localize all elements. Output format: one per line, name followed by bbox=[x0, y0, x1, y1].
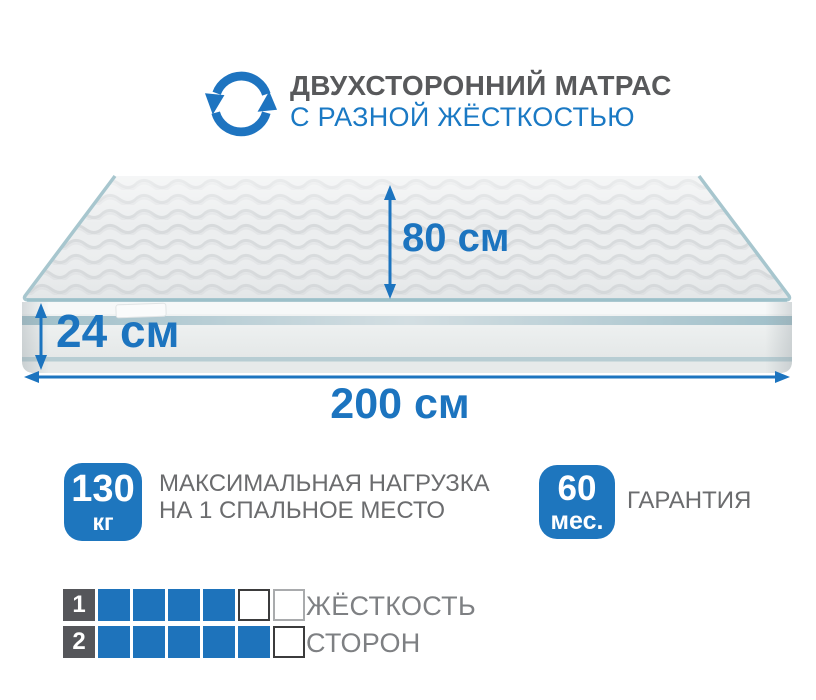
max-load-label: МАКСИМАЛЬНАЯ НАГРУЗКА НА 1 СПАЛЬНОЕ МЕСТ… bbox=[159, 470, 490, 524]
firmness-row-side-2: 2 bbox=[63, 626, 305, 658]
dimension-depth-label: 80 см bbox=[402, 216, 509, 261]
scale-cell-filled bbox=[98, 626, 130, 658]
scale-cell-empty-dark bbox=[238, 589, 270, 621]
firmness-scale: 1 2 bbox=[63, 589, 305, 658]
scale-cell-empty-light bbox=[273, 589, 305, 621]
mattress-infographic: ДВУХСТОРОННИЙ МАТРАС С РАЗНОЙ ЖЁСТКОСТЬЮ bbox=[0, 0, 816, 700]
scale-cell-filled bbox=[133, 626, 165, 658]
scale-cell-filled bbox=[133, 589, 165, 621]
scale-cell-empty-dark bbox=[273, 626, 305, 658]
scale-cell-filled bbox=[168, 589, 200, 621]
rotate-arrows-icon bbox=[204, 60, 278, 144]
warranty-label: ГАРАНТИЯ bbox=[627, 487, 751, 514]
scale-cell-filled bbox=[203, 589, 235, 621]
scale-number-cell: 1 bbox=[63, 589, 95, 621]
warranty-value: 60 bbox=[539, 471, 615, 506]
scale-cell-filled bbox=[203, 626, 235, 658]
dimension-length-label: 200 см bbox=[0, 380, 800, 429]
max-load-value: 130 bbox=[64, 470, 142, 508]
max-load-unit: кг bbox=[64, 511, 142, 534]
page-title: ДВУХСТОРОННИЙ МАТРАС bbox=[290, 70, 672, 102]
page-subtitle: С РАЗНОЙ ЖЁСТКОСТЬЮ bbox=[290, 102, 635, 133]
warranty-unit: мес. bbox=[539, 509, 615, 534]
scale-number-cell: 2 bbox=[63, 626, 95, 658]
scale-cell-filled bbox=[98, 589, 130, 621]
max-load-badge: 130 кг bbox=[64, 463, 142, 541]
firmness-row-side-1: 1 bbox=[63, 589, 305, 621]
scale-cell-filled bbox=[168, 626, 200, 658]
firmness-scale-label-line1: ЖЁСТКОСТЬ bbox=[306, 591, 476, 622]
warranty-badge: 60 мес. bbox=[539, 465, 615, 539]
dimension-thickness-label: 24 см bbox=[56, 304, 180, 358]
firmness-scale-label-line2: СТОРОН bbox=[306, 628, 421, 659]
scale-cell-filled bbox=[238, 626, 270, 658]
